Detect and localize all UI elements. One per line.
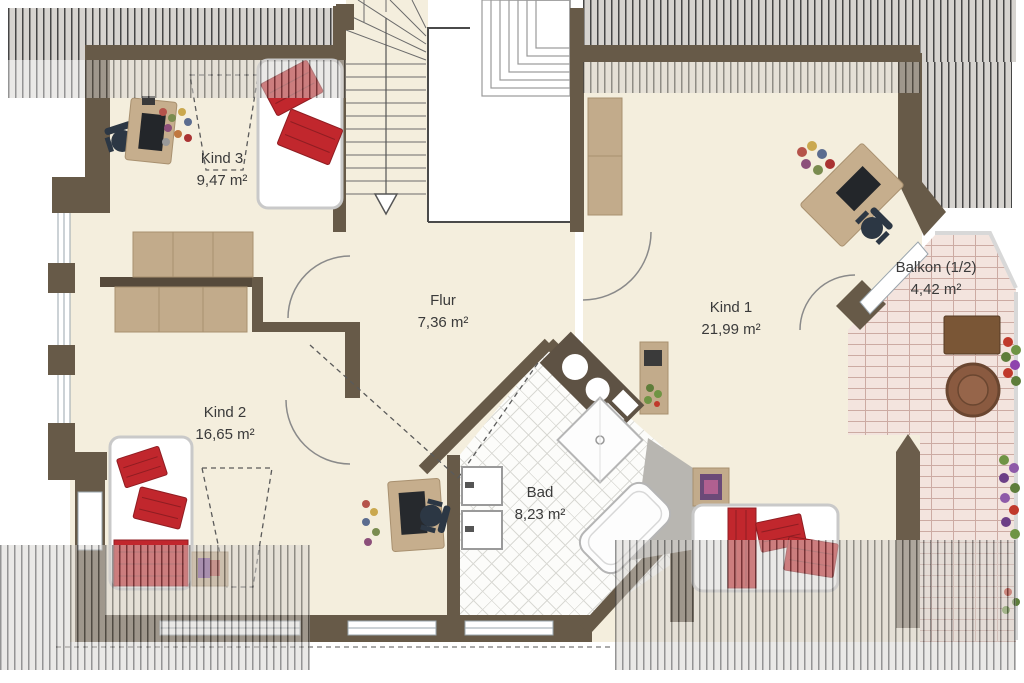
room-area: 7,36 m² [418,312,469,334]
sideboard-kind1 [640,342,668,414]
room-label-kind2: Kind 2 16,65 m² [195,402,254,446]
room-name: Flur [418,290,469,312]
room-area: 4,42 m² [896,279,977,301]
left-window-strip [58,210,70,426]
room-name: Kind 2 [195,402,254,424]
wardrobe-kind3 [133,232,253,277]
room-name: Balkon (1/2) [896,257,977,279]
desk-kind2 [362,478,452,551]
roof-hatch-overlay-bottom-right [615,540,1016,670]
wardrobe-kind2 [115,287,247,332]
room-name: Kind 1 [701,297,760,319]
room-name: Kind 3 [197,148,248,170]
roof-hatch-overlay-bottom-left [0,545,310,670]
room-area: 8,23 m² [515,504,566,526]
stairwell-void [428,28,570,222]
bathroom-vanity [462,467,502,549]
wardrobe-kind1 [588,98,622,215]
room-area: 9,47 m² [197,170,248,192]
balcony-chair [947,364,999,416]
staircase [346,0,428,214]
room-label-balkon: Balkon (1/2) 4,42 m² [896,257,977,301]
balcony-table [944,316,1000,354]
desk-kind3 [102,96,192,164]
room-label-bad: Bad 8,23 m² [515,482,566,526]
room-area: 16,65 m² [195,424,254,446]
room-label-kind1: Kind 1 21,99 m² [701,297,760,341]
roof-hatch-overlay-top-right [583,62,920,93]
room-label-flur: Flur 7,36 m² [418,290,469,334]
desk-kind1 [797,141,904,248]
floor-plan: Kind 3 9,47 m² Kind 2 16,65 m² Flur 7,36… [0,0,1024,683]
roof-hatch-overlay-top-left [8,60,346,98]
room-label-kind3: Kind 3 9,47 m² [197,148,248,192]
room-name: Bad [515,482,566,504]
nightstand-kind1 [693,468,729,506]
room-area: 21,99 m² [701,319,760,341]
stairs-down-arrow-icon [375,194,397,214]
